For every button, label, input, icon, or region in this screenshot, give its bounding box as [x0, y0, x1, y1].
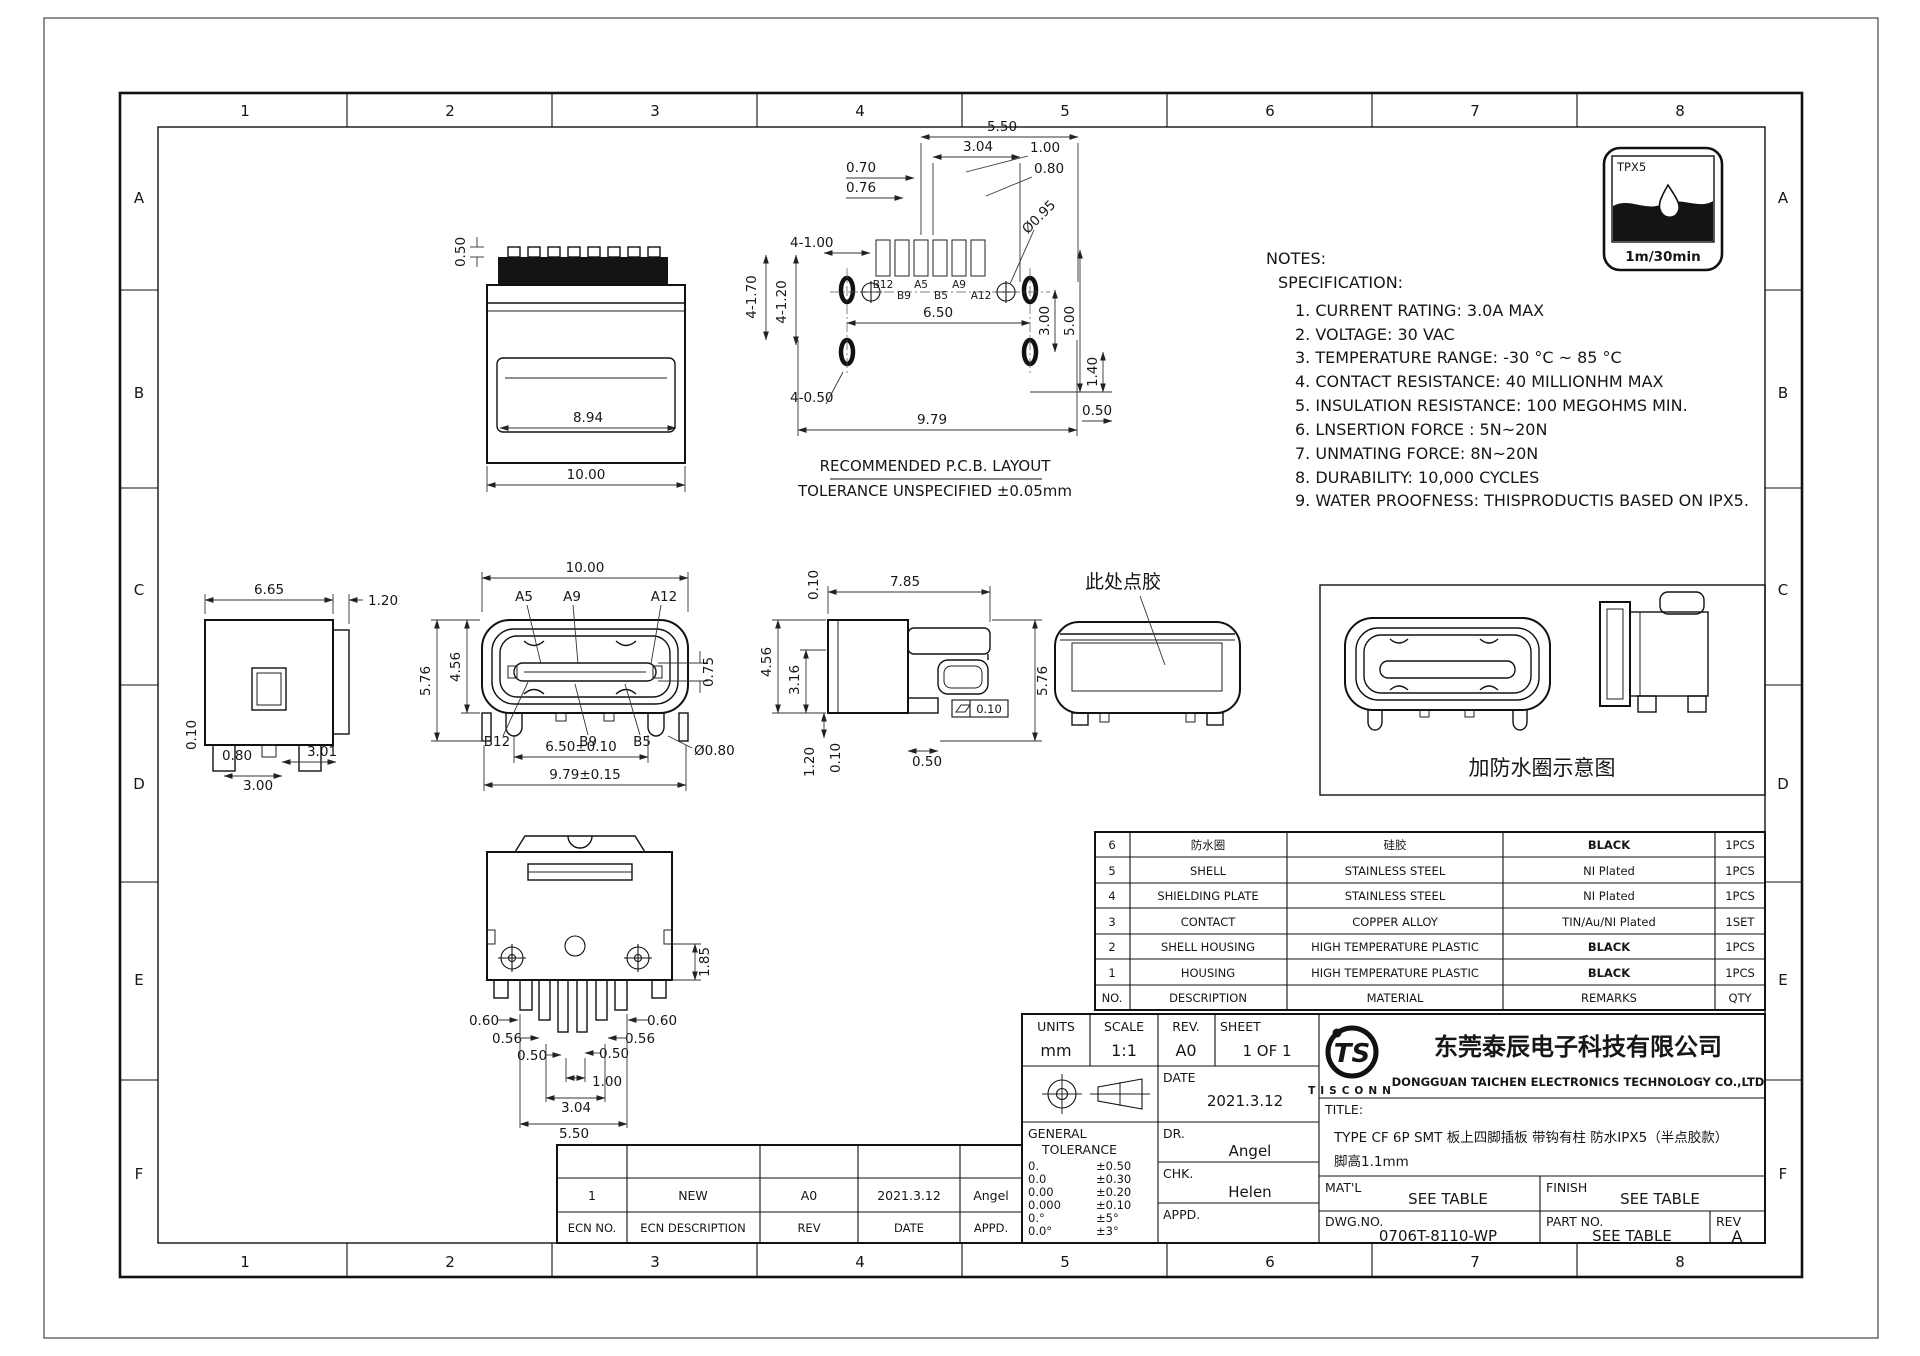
bom-cell: BLACK: [1588, 966, 1631, 980]
pad-label: A9: [952, 279, 966, 291]
bom-cell: STAINLESS STEEL: [1345, 889, 1446, 903]
bom-cell: 1PCS: [1725, 889, 1755, 903]
dim-label: Ø0.95: [1019, 197, 1059, 237]
title-block: UNITS mm SCALE 1:1 REV. A0 SHEET 1 OF 1 …: [1022, 1014, 1765, 1246]
dim-label: 3.04: [963, 139, 993, 155]
bom-cell: HIGH TEMPERATURE PLASTIC: [1311, 940, 1479, 954]
droplet-icon: [1659, 185, 1679, 217]
pcb-layout-view: B12 B9 A5 B5 A9 A12 5.50 3.04 1.00 0.80 …: [744, 119, 1112, 500]
tol-value: ±5°: [1096, 1211, 1119, 1225]
solder-pads: [876, 240, 985, 276]
dim-label: 5.00: [1062, 306, 1078, 336]
company-logo: TS TISCONN: [1308, 1028, 1396, 1097]
bottom-view: 1.85 0.60 0.56 0.50 0.60 0.56 0.50 1.00 …: [469, 836, 713, 1142]
date-value: 2021.3.12: [1207, 1092, 1283, 1110]
view-caption: RECOMMENDED P.C.B. LAYOUT: [820, 457, 1052, 475]
flatness-value: 0.10: [976, 702, 1002, 716]
tolerance-heading: GENERAL: [1028, 1126, 1087, 1141]
zone-col: 7: [1470, 102, 1480, 120]
bom-cell: HOUSING: [1181, 966, 1235, 980]
chk-label: CHK.: [1163, 1166, 1193, 1181]
drawing-title-line2: 脚高1.1mm: [1334, 1153, 1409, 1170]
tol-range: 0.000: [1028, 1198, 1061, 1212]
title-label: TITLE:: [1324, 1102, 1363, 1117]
note-item: 8. DURABILITY: 10,000 CYCLES: [1295, 468, 1539, 487]
zone-col: 6: [1265, 102, 1275, 120]
tol-value: ±0.50: [1096, 1159, 1131, 1173]
rev-header: ECN NO.: [568, 1221, 616, 1235]
dim-label: 6.50: [923, 305, 953, 321]
dim-label: 0.10: [806, 570, 822, 600]
dim-label: 1.20: [802, 747, 818, 777]
tol-value: ±0.30: [1096, 1172, 1131, 1186]
bom-cell: 硅胶: [1384, 838, 1407, 852]
bom-table: 6防水圈硅胶BLACK1PCS 5SHELLSTAINLESS STEELNI …: [1095, 832, 1765, 1010]
bom-cell: 4: [1108, 889, 1115, 903]
zone-row: D: [133, 775, 145, 793]
bom-cell: 1PCS: [1725, 940, 1755, 954]
zone-col: 8: [1675, 102, 1685, 120]
dim-label: 1.40: [1085, 357, 1101, 387]
top-view: 0.50 8.94 10.00: [453, 237, 685, 492]
pin-callout: A5: [515, 589, 533, 605]
zone-col: 6: [1265, 1253, 1275, 1271]
notes-subheading: SPECIFICATION:: [1278, 273, 1403, 292]
tol-range: 0.: [1028, 1159, 1039, 1173]
bom-cell: 5: [1108, 864, 1115, 878]
tol-value: ±0.10: [1096, 1198, 1131, 1212]
date-label: DATE: [1163, 1070, 1196, 1085]
zone-col: 7: [1470, 1253, 1480, 1271]
pin-callout: B12: [484, 734, 510, 750]
zone-row: C: [1778, 581, 1788, 599]
zone-col: 1: [240, 1253, 250, 1271]
dim-label: 0.76: [846, 180, 876, 196]
glue-view: 此处点胶: [1055, 571, 1240, 725]
dim-label: 4.56: [759, 647, 775, 677]
dim-label: 1.85: [697, 947, 713, 977]
chk-value: Helen: [1228, 1183, 1271, 1201]
zone-row: F: [135, 1165, 144, 1183]
drawing-sheet: 1 2 3 4 5 6 7 8 1 2 3 4 5 6 7 8 A B C D …: [0, 0, 1920, 1356]
dim-label: 4-1.20: [774, 280, 790, 324]
dim-label: 3.16: [787, 665, 803, 695]
dim-label: 0.50: [599, 1046, 629, 1062]
dim-label: 6.65: [254, 582, 284, 598]
rev-header: DATE: [894, 1221, 924, 1235]
zone-row: E: [134, 971, 143, 989]
dim-label: 5.76: [1035, 666, 1051, 696]
rev2-value: A: [1732, 1227, 1743, 1246]
note-item: 7. UNMATING FORCE: 8N~20N: [1295, 444, 1538, 463]
dim-label: 6.50±0.10: [545, 739, 616, 755]
projection-symbols: [1042, 1074, 1150, 1114]
note-item: 4. CONTACT RESISTANCE: 40 MILLIONHM MAX: [1295, 372, 1664, 391]
dim-label: 0.60: [647, 1013, 677, 1029]
tol-range: 0.0: [1028, 1172, 1046, 1186]
bom-cell: SHELL: [1190, 864, 1227, 878]
dim-label: 10.00: [567, 467, 606, 483]
dim-label: 0.56: [625, 1031, 655, 1047]
bom-cell: 1PCS: [1725, 838, 1755, 852]
bom-cell: HIGH TEMPERATURE PLASTIC: [1311, 966, 1479, 980]
pad-label: A5: [914, 279, 928, 291]
sheet-label: SHEET: [1220, 1019, 1261, 1034]
company-name-en: DONGGUAN TAICHEN ELECTRONICS TECHNOLOGY …: [1392, 1075, 1765, 1089]
revision-table: 1 NEW A0 2021.3.12 Angel ECN NO. ECN DES…: [557, 1145, 1022, 1243]
dim-label: 0.56: [492, 1031, 522, 1047]
bom-cell: NI Plated: [1583, 864, 1635, 878]
note-item: 1. CURRENT RATING: 3.0A MAX: [1295, 301, 1544, 320]
note-item: 6. LNSERTION FORCE : 5N~20N: [1295, 420, 1547, 439]
zone-col: 3: [650, 102, 660, 120]
dim-label: 9.79: [917, 412, 947, 428]
dim-label: 0.60: [469, 1013, 499, 1029]
view-caption: TOLERANCE UNSPECIFIED ±0.05mm: [797, 482, 1072, 500]
tol-range: 0.00: [1028, 1185, 1054, 1199]
bom-cell: NI Plated: [1583, 889, 1635, 903]
note-item: 3. TEMPERATURE RANGE: -30 °C ~ 85 °C: [1295, 348, 1622, 367]
rev-header: APPD.: [974, 1221, 1008, 1235]
zone-row: A: [1778, 189, 1789, 207]
glue-note: 此处点胶: [1085, 571, 1161, 593]
side-view: 0.10 7.85 4.56 3.16 1.20 0.10 0.50 5.76 …: [759, 570, 1051, 777]
zone-col: 4: [855, 102, 865, 120]
dim-label: 0.50: [912, 754, 942, 770]
dr-value: Angel: [1229, 1142, 1272, 1160]
dr-label: DR.: [1163, 1126, 1185, 1141]
zone-col: 1: [240, 102, 250, 120]
bom-cell: STAINLESS STEEL: [1345, 864, 1446, 878]
bom-cell: SHIELDING PLATE: [1157, 889, 1258, 903]
dim-label: 3.00: [1037, 306, 1053, 336]
bom-cell: SHELL HOUSING: [1161, 940, 1255, 954]
bom-cell: BLACK: [1588, 838, 1631, 852]
dim-label: 1.00: [1030, 140, 1060, 156]
note-item: 2. VOLTAGE: 30 VAC: [1295, 325, 1455, 344]
rev-value: A0: [1175, 1041, 1196, 1060]
rev-cell: 2021.3.12: [877, 1188, 941, 1203]
tol-range: 0.°: [1028, 1211, 1045, 1225]
logo-wordmark: TISCONN: [1308, 1085, 1396, 1097]
bom-cell: 3: [1108, 915, 1115, 929]
badge-label: TPX5: [1616, 160, 1646, 174]
drawing-title-line1: TYPE CF 6P SMT 板上四脚插板 带钩有柱 防水IPX5（半点胶款）: [1333, 1129, 1728, 1146]
dim-label: 5.50: [559, 1126, 589, 1142]
dim-label: 7.85: [890, 574, 920, 590]
zone-col: 4: [855, 1253, 865, 1271]
bom-header: NO.: [1102, 991, 1123, 1005]
scale-label: SCALE: [1104, 1019, 1144, 1034]
bom-cell: 1: [1108, 966, 1115, 980]
dim-label: 4-1.70: [744, 275, 760, 319]
ring-front-subview: [1345, 618, 1550, 730]
dim-label: 0.50: [453, 237, 469, 267]
zone-row: C: [134, 581, 144, 599]
dim-label: 0.50: [517, 1048, 547, 1064]
bom-header: QTY: [1728, 991, 1752, 1005]
tol-value: ±3°: [1096, 1224, 1119, 1238]
bom-cell: CONTACT: [1181, 915, 1237, 929]
sheet-value: 1 OF 1: [1242, 1042, 1291, 1060]
ring-caption: 加防水圈示意图: [1469, 756, 1616, 780]
zone-col: 2: [445, 1253, 455, 1271]
dim-label: 3.01: [307, 744, 337, 760]
zone-col: 5: [1060, 1253, 1070, 1271]
dim-label: 3.04: [561, 1100, 591, 1116]
zone-row: D: [1777, 775, 1789, 793]
part-no-value: SEE TABLE: [1592, 1227, 1672, 1245]
ring-side-subview: [1600, 592, 1708, 712]
zone-col: 5: [1060, 102, 1070, 120]
matl-label: MAT'L: [1325, 1180, 1361, 1195]
dim-label: 0.10: [184, 720, 200, 750]
notes-heading: NOTES:: [1266, 249, 1326, 268]
dim-label: 5.50: [987, 119, 1017, 135]
rev-cell: Angel: [973, 1188, 1009, 1203]
rev-cell: NEW: [678, 1188, 708, 1203]
zone-row: B: [134, 384, 144, 402]
bom-cell: 防水圈: [1191, 838, 1226, 852]
finish-value: SEE TABLE: [1620, 1190, 1700, 1208]
dim-label: 0.50: [1082, 403, 1112, 419]
units-value: mm: [1040, 1041, 1071, 1060]
units-label: UNITS: [1037, 1019, 1075, 1034]
bom-cell: 2: [1108, 940, 1115, 954]
logo-monogram: TS: [1334, 1039, 1370, 1069]
dim-label: 4-1.00: [790, 235, 834, 251]
dim-label: 0.70: [846, 160, 876, 176]
bom-header: DESCRIPTION: [1169, 991, 1247, 1005]
note-item: 9. WATER PROOFNESS: THISPRODUCTIS BASED …: [1295, 491, 1749, 510]
zone-row: F: [1779, 1165, 1788, 1183]
engineering-drawing: 1 2 3 4 5 6 7 8 1 2 3 4 5 6 7 8 A B C D …: [0, 0, 1920, 1356]
zone-col: 2: [445, 102, 455, 120]
bom-cell: 6: [1108, 838, 1115, 852]
zone-col: 8: [1675, 1253, 1685, 1271]
tolerance-heading: TOLERANCE: [1041, 1142, 1117, 1157]
dim-label: 0.80: [222, 748, 252, 764]
dwg-no-label: DWG.NO.: [1325, 1214, 1383, 1229]
badge-caption: 1m/30min: [1625, 249, 1700, 265]
zone-col: 3: [650, 1253, 660, 1271]
rev-label: REV.: [1172, 1019, 1200, 1034]
front-view: A5 A9 A12 B12 B9 B5 10.00 5.76 4.56 0.75…: [418, 560, 735, 791]
dim-label: 1.00: [592, 1074, 622, 1090]
zone-row: B: [1778, 384, 1788, 402]
zone-labels: 1 2 3 4 5 6 7 8 1 2 3 4 5 6 7 8 A B C D …: [133, 102, 1789, 1271]
dim-label: Ø0.80: [694, 743, 735, 759]
bom-header: REMARKS: [1581, 991, 1637, 1005]
tol-range: 0.0°: [1028, 1224, 1052, 1238]
dim-label: 0.80: [1034, 161, 1064, 177]
rev-cell: 1: [588, 1188, 596, 1203]
dim-label: 8.94: [573, 410, 603, 426]
flatness-frame: 0.10: [952, 700, 1008, 717]
dim-label: 4.56: [448, 652, 464, 682]
zone-row: E: [1778, 971, 1787, 989]
rev-cell: A0: [801, 1188, 818, 1203]
dim-label: 4-0.50: [790, 390, 834, 406]
finish-label: FINISH: [1546, 1180, 1587, 1195]
bom-cell: COPPER ALLOY: [1352, 915, 1439, 929]
company-name-cn: 东莞泰辰电子科技有限公司: [1434, 1033, 1722, 1061]
tol-value: ±0.20: [1096, 1185, 1131, 1199]
ipx5-badge: TPX5 1m/30min: [1604, 148, 1722, 270]
dim-label: 0.10: [828, 743, 844, 773]
bom-cell: TIN/Au/NI Plated: [1561, 915, 1656, 929]
rev-header: ECN DESCRIPTION: [640, 1221, 745, 1235]
dim-label: 1.20: [368, 593, 398, 609]
bom-header: MATERIAL: [1367, 991, 1424, 1005]
left-view: 6.65 1.20 0.10 0.80 3.01 3.00: [184, 582, 398, 794]
notes-block: NOTES: SPECIFICATION: 1. CURRENT RATING:…: [1266, 249, 1749, 510]
zone-row: A: [134, 189, 145, 207]
pin-callout: A12: [651, 589, 677, 605]
bom-cell: 1PCS: [1725, 966, 1755, 980]
scale-value: 1:1: [1111, 1041, 1137, 1060]
bom-cell: BLACK: [1588, 940, 1631, 954]
foot-holes: [498, 936, 652, 972]
matl-value: SEE TABLE: [1408, 1190, 1488, 1208]
note-item: 5. INSULATION RESISTANCE: 100 MEGOHMS MI…: [1295, 396, 1688, 415]
dim-label: 5.76: [418, 666, 434, 696]
dim-label: 9.79±0.15: [549, 767, 620, 783]
appd-label: APPD.: [1163, 1207, 1200, 1222]
waterproof-ring-box: 加防水圈示意图: [1320, 585, 1765, 795]
bom-cell: 1PCS: [1725, 864, 1755, 878]
dim-label: 10.00: [566, 560, 605, 576]
bom-cell: 1SET: [1726, 915, 1756, 929]
dim-label: 0.75: [701, 657, 717, 687]
dwg-no-value: 0706T-8110-WP: [1379, 1227, 1497, 1245]
dim-label: 3.00: [243, 778, 273, 794]
rev-header: REV: [797, 1221, 820, 1235]
pin-callout: A9: [563, 589, 581, 605]
